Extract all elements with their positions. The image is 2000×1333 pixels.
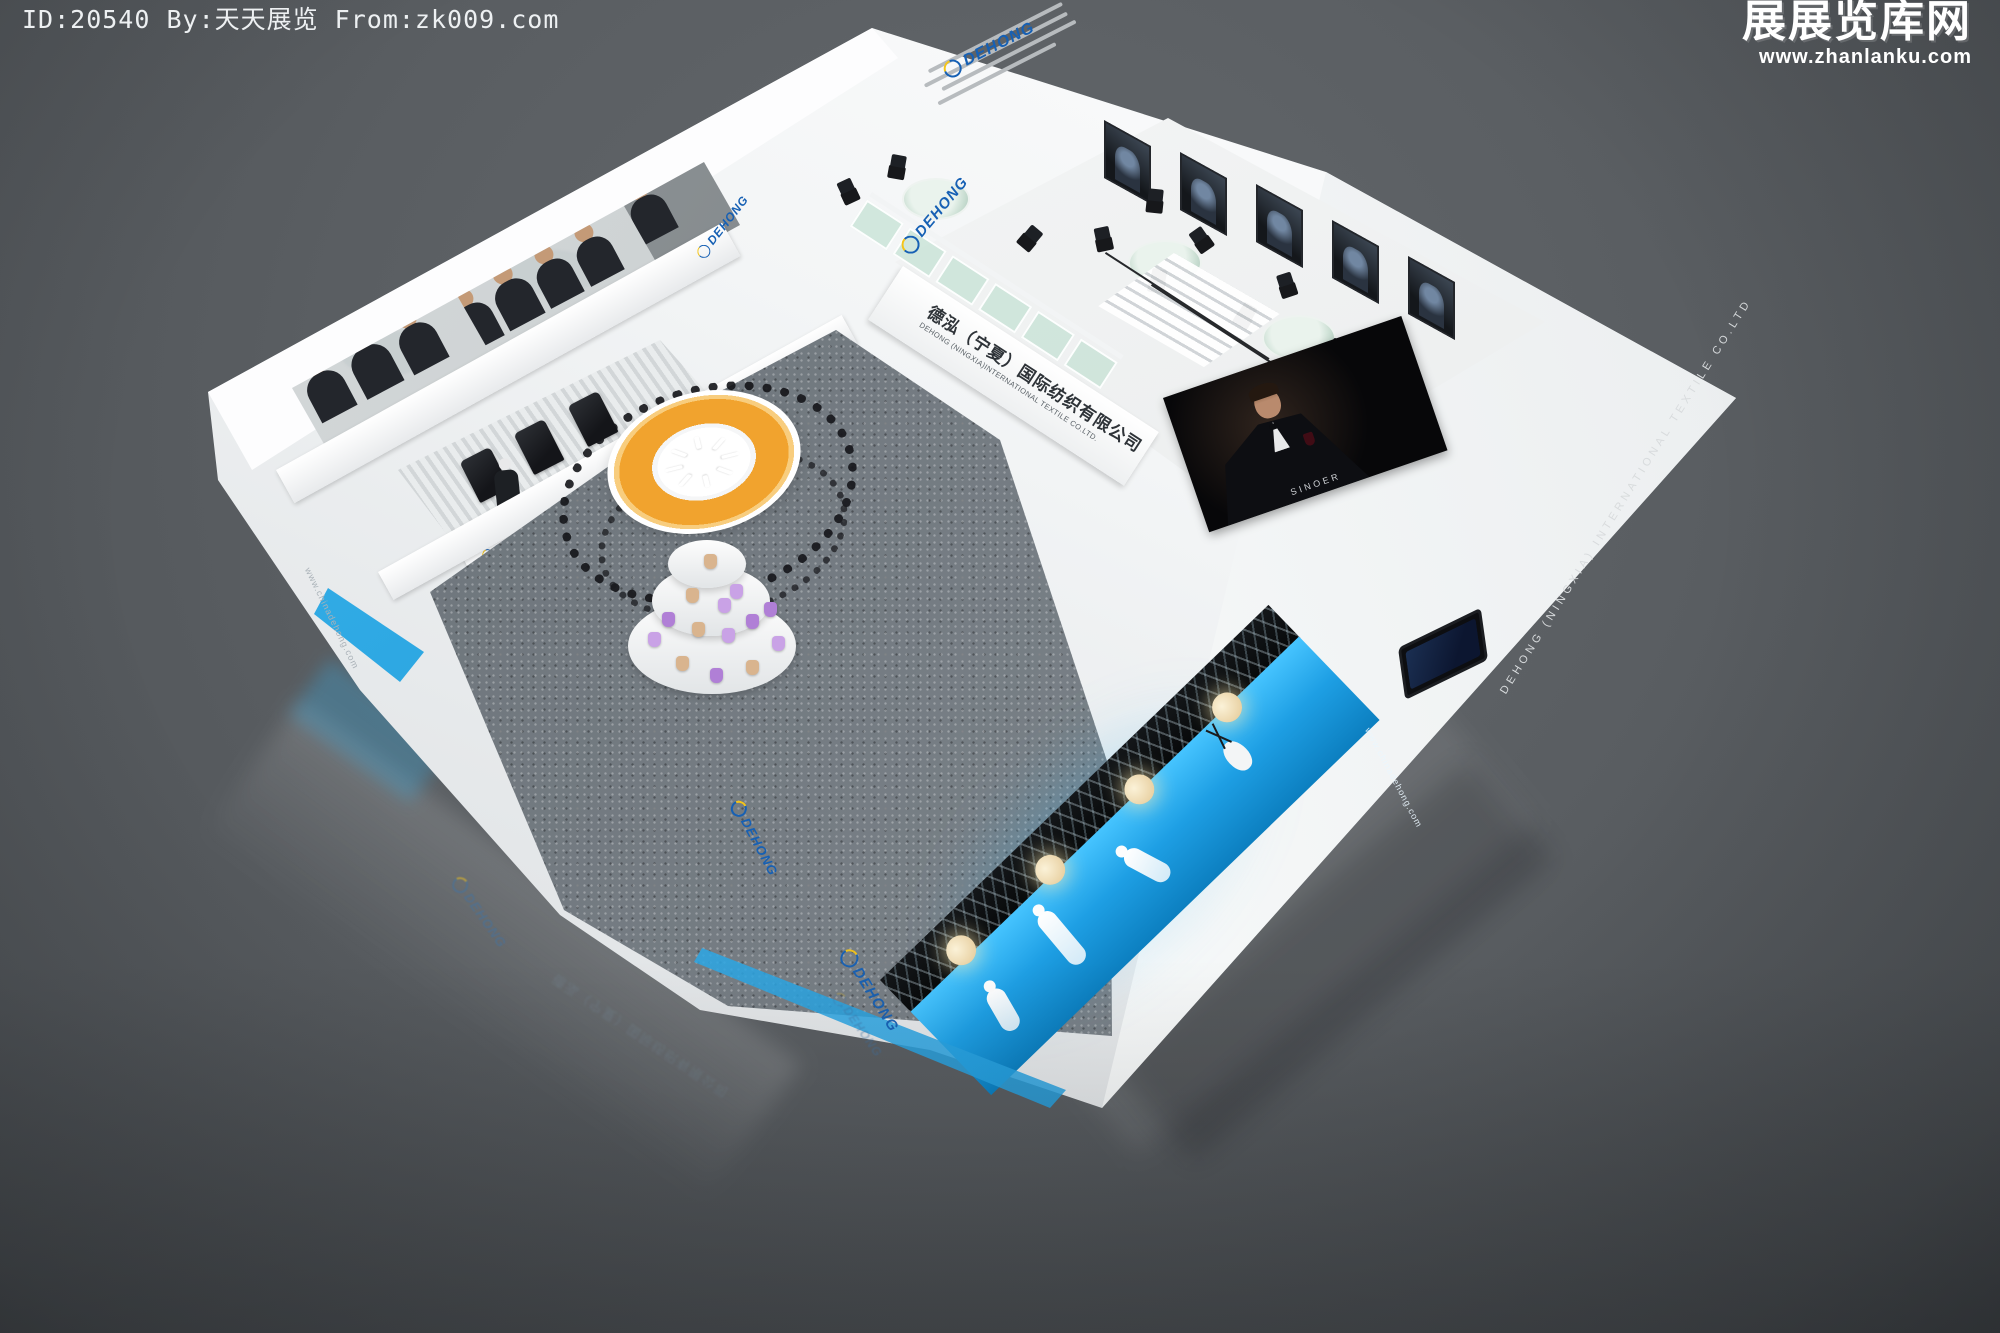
watermark-site-logo: 展展览库网 www.zhanlanku.com — [0, 0, 1972, 1323]
watermark-url-text: www.zhanlanku.com — [0, 46, 1972, 69]
exhibition-booth-render: DEHONG DEHONG — [0, 0, 2000, 1333]
watermark-logo-text: 展展览库网 — [0, 0, 1972, 44]
